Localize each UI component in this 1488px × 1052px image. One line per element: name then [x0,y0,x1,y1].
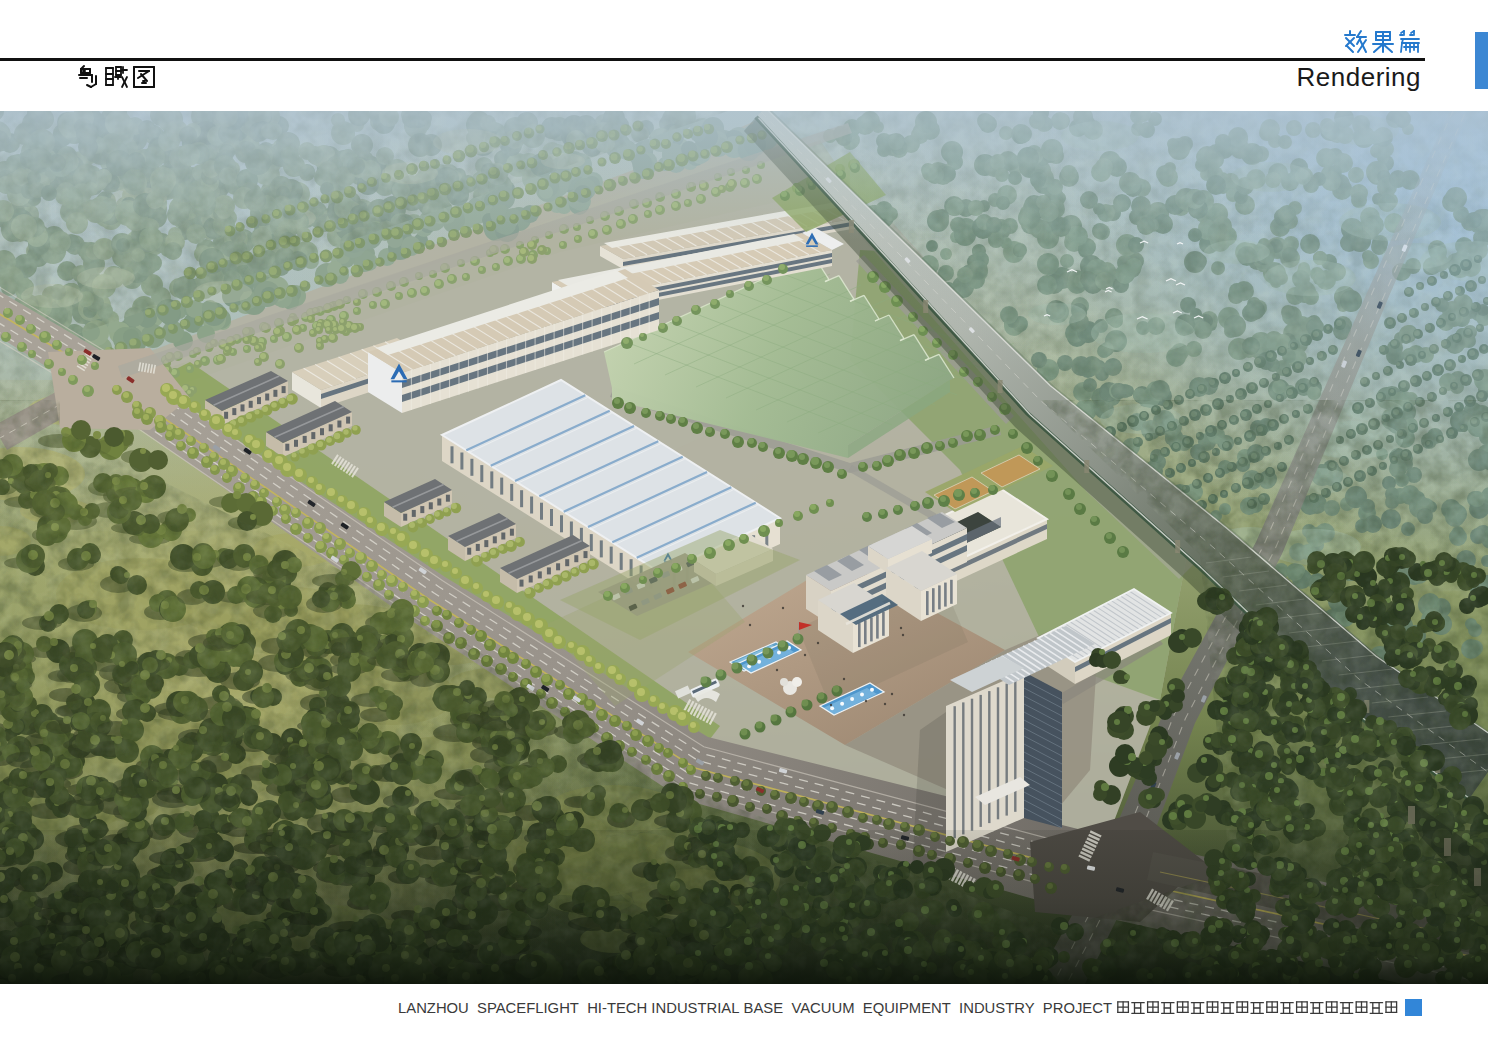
svg-text:LANZHOU SPACEFLIGHT HI-TECH: LANZHOU SPACEFLIGHT HI-TECH INDUSTRIAL B… [398,999,1112,1016]
